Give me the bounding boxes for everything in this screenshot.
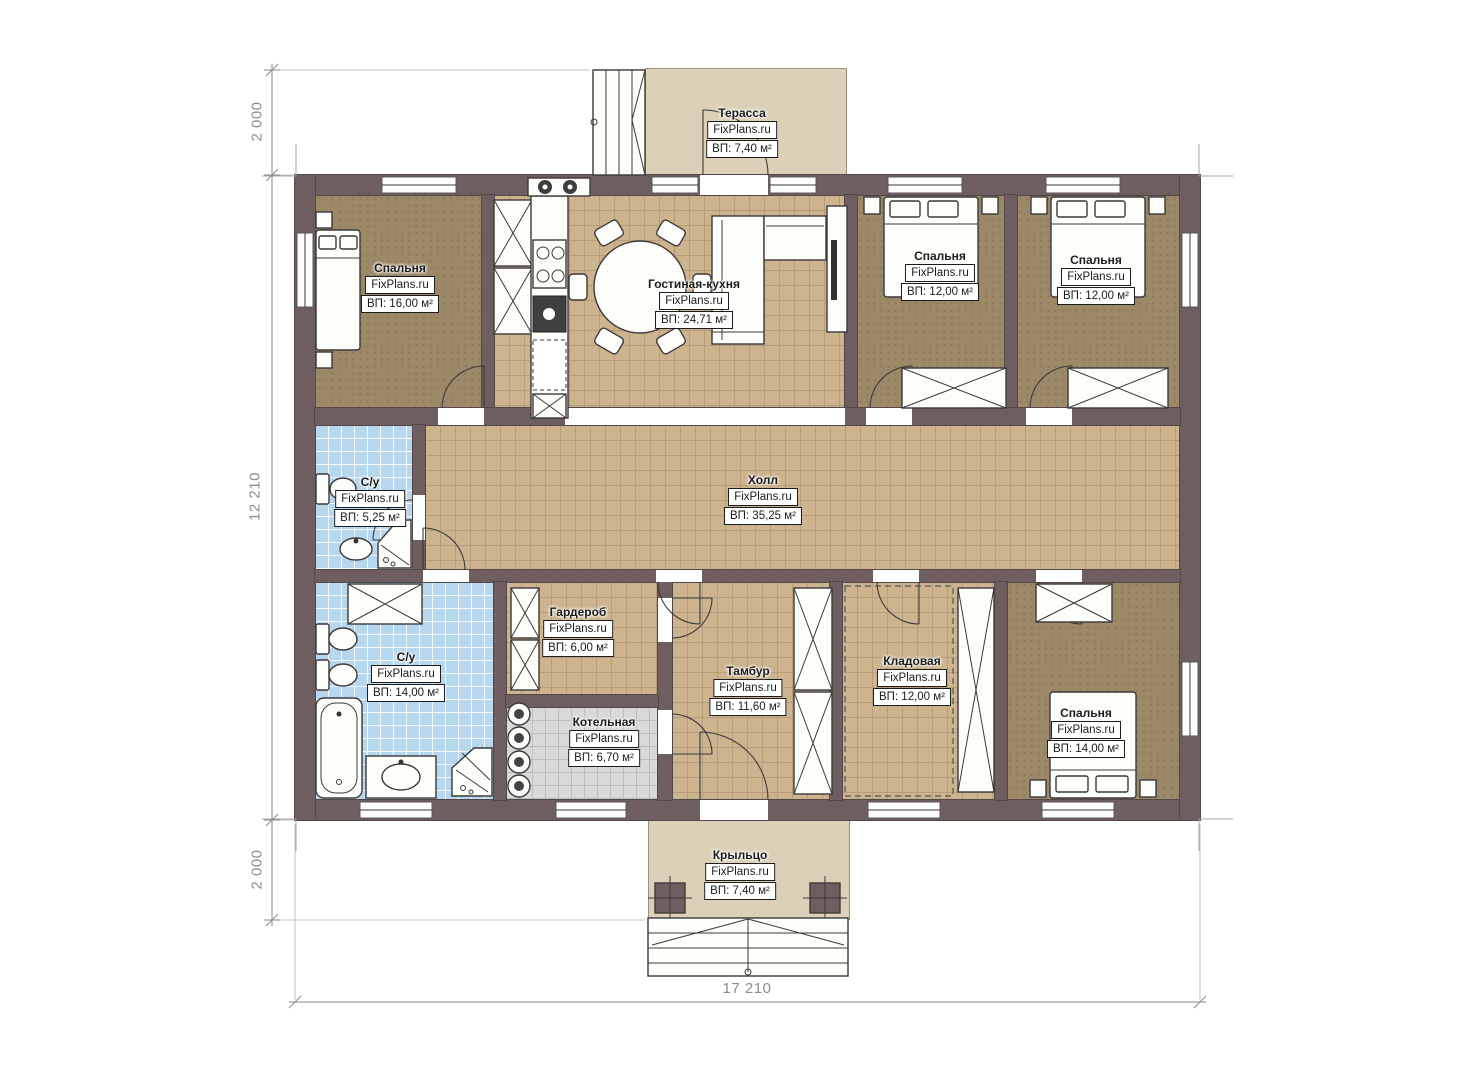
brand-watermark: FixPlans.ru — [371, 665, 441, 683]
room-label-vestibule: Тамбур FixPlans.ru ВП: 11,60 м² — [709, 664, 786, 716]
room-area: ВП: 7,40 м² — [706, 140, 778, 158]
room-area: ВП: 16,00 м² — [361, 295, 439, 313]
wall-bathroom1-right — [413, 425, 425, 570]
wall-bathroom2-right — [494, 582, 506, 800]
room-area: ВП: 12,00 м² — [901, 283, 979, 301]
room-label-kitchen: Гостиная-кухня FixPlans.ru ВП: 24,71 м² — [648, 277, 740, 329]
room-name: Спальня — [1057, 253, 1135, 267]
room-label-porch: Крыльцо FixPlans.ru ВП: 7,40 м² — [704, 848, 776, 900]
brand-watermark: FixPlans.ru — [543, 620, 613, 638]
room-label-bedroom4: Спальня FixPlans.ru ВП: 14,00 м² — [1047, 706, 1125, 758]
wall-hall-bottomrooms — [315, 570, 1180, 582]
floor-bedroom2 — [857, 195, 1005, 425]
room-name: Крыльцо — [704, 848, 776, 862]
floor-bedroom4 — [1007, 582, 1180, 800]
room-name: Холл — [724, 473, 802, 487]
brand-watermark: FixPlans.ru — [335, 490, 405, 508]
brand-watermark: FixPlans.ru — [1061, 268, 1131, 286]
room-area: ВП: 14,00 м² — [367, 684, 445, 702]
dimension-bottom-width: 17 210 — [707, 980, 787, 997]
brand-watermark: FixPlans.ru — [707, 121, 777, 139]
room-label-wardrobe: Гардероб FixPlans.ru ВП: 6,00 м² — [542, 605, 614, 657]
terrace-stairs — [591, 70, 645, 175]
wall-storage-right — [995, 582, 1007, 800]
room-name: Спальня — [361, 261, 439, 275]
room-name: С/у — [334, 475, 406, 489]
wall-outer-right — [1180, 175, 1200, 820]
wall-bedroom1-right — [482, 195, 494, 425]
room-name: Спальня — [1047, 706, 1125, 720]
dimension-left-middle: 12 210 — [247, 457, 264, 537]
brand-watermark: FixPlans.ru — [905, 264, 975, 282]
room-area: ВП: 35,25 м² — [724, 507, 802, 525]
room-label-terrace: Терасса FixPlans.ru ВП: 7,40 м² — [706, 106, 778, 158]
wall-outer-top — [295, 175, 1200, 195]
wall-wardrobe-boiler — [506, 695, 658, 707]
room-area: ВП: 6,70 м² — [568, 749, 640, 767]
brand-watermark: FixPlans.ru — [877, 669, 947, 687]
room-name: Гардероб — [542, 605, 614, 619]
room-area: ВП: 7,40 м² — [704, 882, 776, 900]
brand-watermark: FixPlans.ru — [705, 863, 775, 881]
wall-outer-left — [295, 175, 315, 820]
dimension-left-bottom: 2 000 — [249, 830, 266, 910]
room-label-bathroom1: С/у FixPlans.ru ВП: 5,25 м² — [334, 475, 406, 527]
room-name: Терасса — [706, 106, 778, 120]
brand-watermark: FixPlans.ru — [569, 730, 639, 748]
brand-watermark: FixPlans.ru — [1051, 721, 1121, 739]
porch-steps — [648, 918, 848, 976]
room-label-boiler: Котельная FixPlans.ru ВП: 6,70 м² — [568, 715, 640, 767]
wall-kitchen-bedroom2 — [845, 195, 857, 425]
dimension-left-top: 2 000 — [249, 82, 266, 162]
room-area: ВП: 24,71 м² — [655, 311, 733, 329]
room-name: Тамбур — [709, 664, 786, 678]
room-label-hall: Холл FixPlans.ru ВП: 35,25 м² — [724, 473, 802, 525]
brand-watermark: FixPlans.ru — [728, 488, 798, 506]
wall-toprooms-hall — [315, 408, 1180, 425]
room-name: Спальня — [901, 249, 979, 263]
room-name: С/у — [367, 650, 445, 664]
brand-watermark: FixPlans.ru — [365, 276, 435, 294]
room-area: ВП: 12,00 м² — [873, 688, 951, 706]
wall-bedroom2-bedroom3 — [1005, 195, 1017, 425]
room-label-bathroom2: С/у FixPlans.ru ВП: 14,00 м² — [367, 650, 445, 702]
floor-bedroom3 — [1017, 195, 1180, 425]
wall-outer-bottom — [295, 800, 1200, 820]
room-area: ВП: 14,00 м² — [1047, 740, 1125, 758]
brand-watermark: FixPlans.ru — [713, 679, 783, 697]
room-area: ВП: 12,00 м² — [1057, 287, 1135, 305]
room-label-storage: Кладовая FixPlans.ru ВП: 12,00 м² — [873, 654, 951, 706]
floor-hall — [425, 425, 1180, 570]
room-area: ВП: 5,25 м² — [334, 509, 406, 527]
room-name: Котельная — [568, 715, 640, 729]
room-label-bedroom2: Спальня FixPlans.ru ВП: 12,00 м² — [901, 249, 979, 301]
room-name: Кладовая — [873, 654, 951, 668]
room-name: Гостиная-кухня — [648, 277, 740, 291]
room-label-bedroom1: Спальня FixPlans.ru ВП: 16,00 м² — [361, 261, 439, 313]
brand-watermark: FixPlans.ru — [659, 292, 729, 310]
floor-plan: Терасса FixPlans.ru ВП: 7,40 м² Спальня … — [0, 0, 1473, 1080]
room-area: ВП: 11,60 м² — [709, 698, 786, 716]
wall-vestibule-left — [658, 582, 672, 800]
wall-vestibule-right — [830, 582, 842, 800]
room-label-bedroom3: Спальня FixPlans.ru ВП: 12,00 м² — [1057, 253, 1135, 305]
room-area: ВП: 6,00 м² — [542, 639, 614, 657]
